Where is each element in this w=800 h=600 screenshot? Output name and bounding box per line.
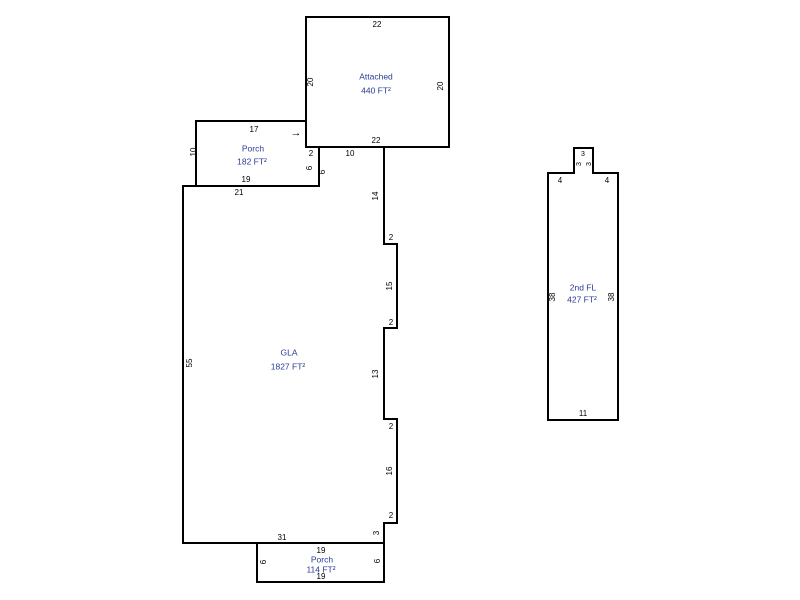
- gla-bottom-dim: 31: [278, 533, 287, 542]
- garage-top-dim: 22: [373, 20, 382, 29]
- rear-porch-right-dim: 6: [373, 558, 382, 563]
- sketch-canvas: 22202022Attached440 FT²1710Porch182 FT²1…: [0, 0, 800, 600]
- gla-right-dim-3: 13: [371, 369, 380, 378]
- gla-left-dim: 55: [185, 358, 194, 367]
- second-floor-bump-right-dim: 3: [586, 162, 593, 166]
- garage-right-dim: 20: [436, 81, 445, 90]
- gla-area-label: GLA: [280, 347, 297, 357]
- gla-top-dim: 21: [235, 188, 244, 197]
- attached-garage-outline: [306, 17, 449, 147]
- second-floor-bump-top-dim: 3: [581, 151, 585, 158]
- front-porch-area-value: 182 FT²: [237, 156, 267, 166]
- second-floor-right-shoulder-dim: 4: [605, 176, 610, 185]
- second-floor-bump-left-dim: 3: [576, 162, 583, 166]
- gla-step-dim-2: 2: [389, 318, 394, 327]
- gla-area-value: 1827 FT²: [271, 361, 306, 371]
- second-floor-left-shoulder-dim: 4: [558, 176, 563, 185]
- front-porch-bottom-dim: 19: [242, 175, 251, 184]
- gla-right-dim-1: 14: [371, 191, 380, 200]
- second-floor-area-value: 427 FT²: [567, 294, 597, 304]
- gla-upper-dim: 10: [346, 149, 355, 158]
- rear-porch-area-label: Porch: [311, 554, 333, 564]
- front-porch-top-dim: 17: [250, 125, 259, 134]
- entry-arrow-icon: →: [291, 127, 302, 139]
- front-porch-step-dim: 2: [309, 149, 314, 158]
- second-floor-right-dim: 38: [607, 292, 616, 301]
- garage-bottom-dim: 22: [372, 136, 381, 145]
- front-porch-area-label: Porch: [242, 143, 264, 153]
- second-floor-area-label: 2nd FL: [570, 282, 597, 292]
- front-porch-left-dim: 10: [189, 147, 198, 156]
- second-floor-left-dim: 38: [548, 292, 557, 301]
- rear-porch-bottom-dim: 19: [317, 572, 326, 581]
- gla-outline: [183, 147, 397, 543]
- rear-porch-left-dim: 6: [259, 559, 268, 564]
- gla-right-dim-5: 3: [372, 530, 381, 535]
- gla-step-dim-1: 2: [389, 233, 394, 242]
- garage-area-value: 440 FT²: [361, 85, 391, 95]
- gla-right-dim-4: 16: [385, 466, 394, 475]
- garage-left-dim: 20: [306, 77, 315, 86]
- garage-area-label: Attached: [359, 71, 393, 81]
- gla-notch-dim: 6: [318, 169, 327, 174]
- front-porch-right-dim: 6: [305, 165, 314, 170]
- second-floor-bottom-dim: 11: [579, 409, 588, 418]
- floor-plan-sketch: 22202022Attached440 FT²1710Porch182 FT²1…: [0, 0, 800, 600]
- gla-step-dim-4: 2: [389, 511, 394, 520]
- gla-step-dim-3: 2: [389, 422, 394, 431]
- gla-right-dim-2: 15: [385, 281, 394, 290]
